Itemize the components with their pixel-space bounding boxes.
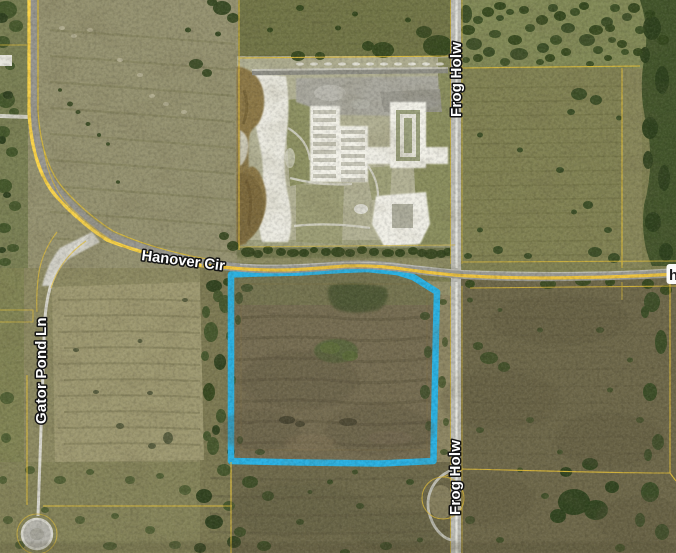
svg-text:Frog Holw: Frog Holw [448, 42, 465, 117]
svg-text:h: h [669, 267, 676, 284]
svg-text:Gator Pond Ln: Gator Pond Ln [33, 317, 50, 424]
svg-text:Frog Holw: Frog Holw [447, 440, 464, 515]
